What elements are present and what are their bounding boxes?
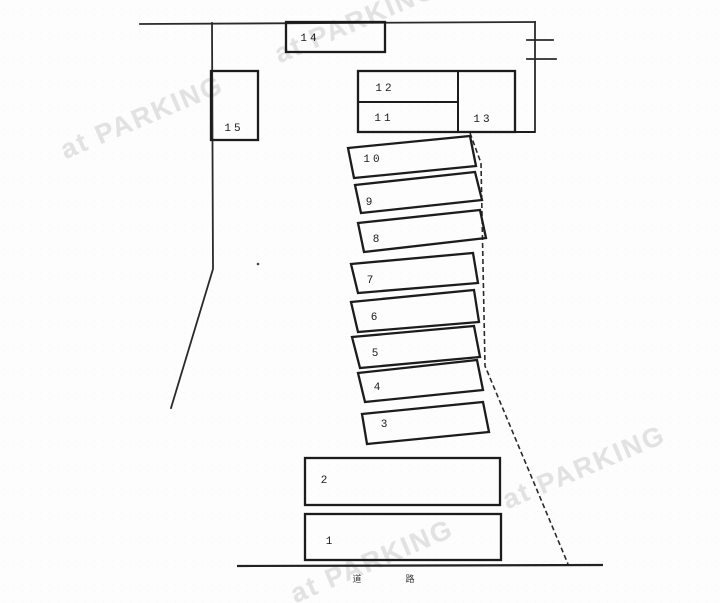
parking-space-label-10: 10 bbox=[363, 154, 382, 166]
parking-space-9 bbox=[355, 172, 482, 213]
parking-map: at PARKING at PARKING at PARKING at PARK… bbox=[0, 0, 720, 603]
parking-space-label-2: 2 bbox=[321, 475, 328, 487]
parking-space-label-4: 4 bbox=[374, 382, 381, 394]
parking-space-label-14: 14 bbox=[300, 33, 319, 45]
parking-space-7 bbox=[351, 253, 478, 293]
site-plan-svg: 14 15 12 11 13 10 9 8 7 6 5 4 3 2 1 bbox=[0, 0, 720, 603]
parking-space-label-3: 3 bbox=[381, 419, 388, 431]
parking-space-label-5: 5 bbox=[372, 348, 379, 360]
stray-dot bbox=[257, 263, 260, 266]
parking-space-label-15: 15 bbox=[224, 123, 243, 135]
parking-space-label-7: 7 bbox=[367, 275, 374, 287]
parking-space-label-6: 6 bbox=[371, 312, 378, 324]
road-character-1: 道 bbox=[352, 573, 361, 585]
parking-space-label-11: 11 bbox=[374, 113, 393, 125]
parking-space-6 bbox=[351, 290, 479, 332]
parking-space-label-8: 8 bbox=[373, 234, 380, 246]
boundary-right-diagonal-line bbox=[470, 133, 568, 564]
parking-space-label-13: 13 bbox=[473, 114, 492, 126]
boundary-left-line bbox=[171, 23, 213, 408]
parking-space-label-9: 9 bbox=[366, 197, 373, 209]
parking-space-1 bbox=[305, 514, 501, 560]
parking-space-label-12: 12 bbox=[375, 83, 394, 95]
road-edge-bottom-line bbox=[237, 565, 603, 566]
road-character-2: 路 bbox=[405, 573, 414, 585]
parking-space-2 bbox=[305, 458, 500, 505]
parking-space-label-1: 1 bbox=[326, 536, 333, 548]
